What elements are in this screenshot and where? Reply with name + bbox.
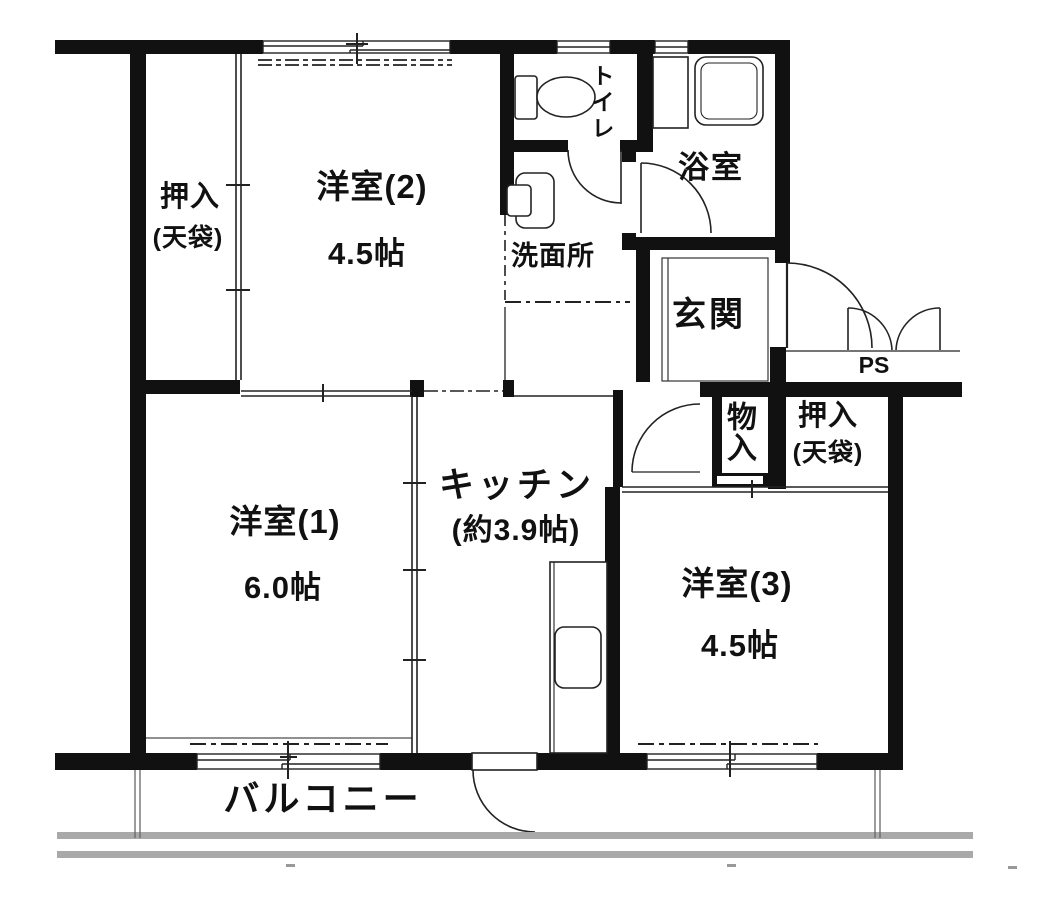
room-label-kitchen: キッチン <box>439 468 595 503</box>
kitchen-counter-fixture <box>550 562 607 753</box>
label-pipe-shaft: PS <box>859 354 890 377</box>
room-label-western3: 洋室(3) <box>681 567 792 600</box>
toilet-fixture <box>515 76 595 119</box>
room-label-western2: 洋室(2) <box>316 170 427 203</box>
room-label-western1: 洋室(1) <box>229 505 340 538</box>
room-label-closet-east: 押入 <box>798 402 858 431</box>
washbasin-fixture <box>507 173 554 228</box>
room-size-western2: 4.5帖 <box>328 238 406 269</box>
room-label-entrance: 玄関 <box>672 298 746 332</box>
label-balcony: バルコニー <box>223 781 422 817</box>
room-label-toilet: トイレ <box>589 64 612 142</box>
room-size-western3: 4.5帖 <box>701 630 779 661</box>
floor-plan: 洋室(2) 4.5帖 押入 (天袋) トイレ 浴室 洗面所 玄関 PS 物入 押… <box>0 0 1050 900</box>
room-label-washroom: 洗面所 <box>511 243 595 270</box>
balcony-rails <box>57 770 1017 869</box>
room-size-western1: 6.0帖 <box>244 572 322 603</box>
room-note-closet-east: (天袋) <box>793 441 864 466</box>
bathtub-fixture <box>653 57 763 128</box>
room-size-kitchen: (約3.9帖) <box>452 516 581 546</box>
room-label-bath: 浴室 <box>678 152 744 183</box>
room-label-storage: 物入 <box>723 401 753 463</box>
storage-door-panel <box>717 476 763 484</box>
floor-plan-drawing <box>0 0 1050 900</box>
room-label-closet-nw: 押入 <box>160 183 220 212</box>
room-note-closet-nw: (天袋) <box>153 226 224 251</box>
